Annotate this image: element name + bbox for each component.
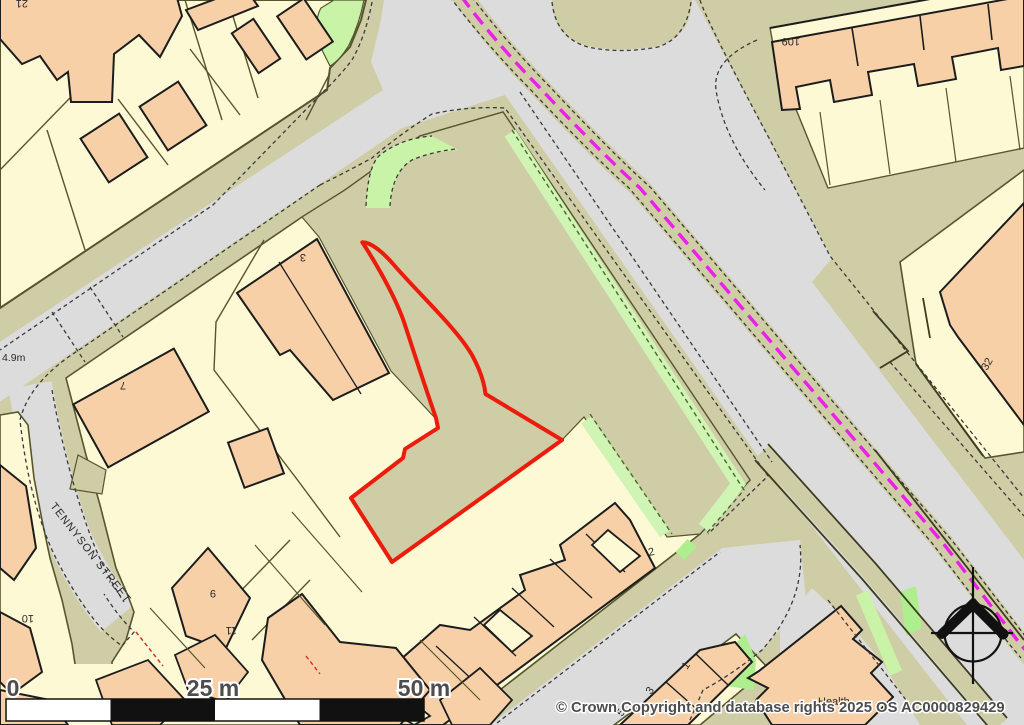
svg-text:21: 21 — [16, 0, 28, 9]
svg-text:10: 10 — [22, 612, 34, 624]
svg-text:25 m: 25 m — [187, 675, 239, 701]
svg-text:© Crown Copyright and database: © Crown Copyright and database rights 20… — [556, 700, 1005, 716]
svg-text:9: 9 — [210, 587, 216, 599]
svg-text:3: 3 — [300, 251, 306, 263]
svg-text:4.9m: 4.9m — [2, 352, 26, 364]
svg-text:109: 109 — [782, 35, 800, 47]
svg-text:50 m: 50 m — [398, 675, 450, 701]
svg-text:0: 0 — [7, 675, 20, 701]
svg-text:11: 11 — [226, 624, 237, 636]
svg-text:7: 7 — [120, 379, 126, 391]
